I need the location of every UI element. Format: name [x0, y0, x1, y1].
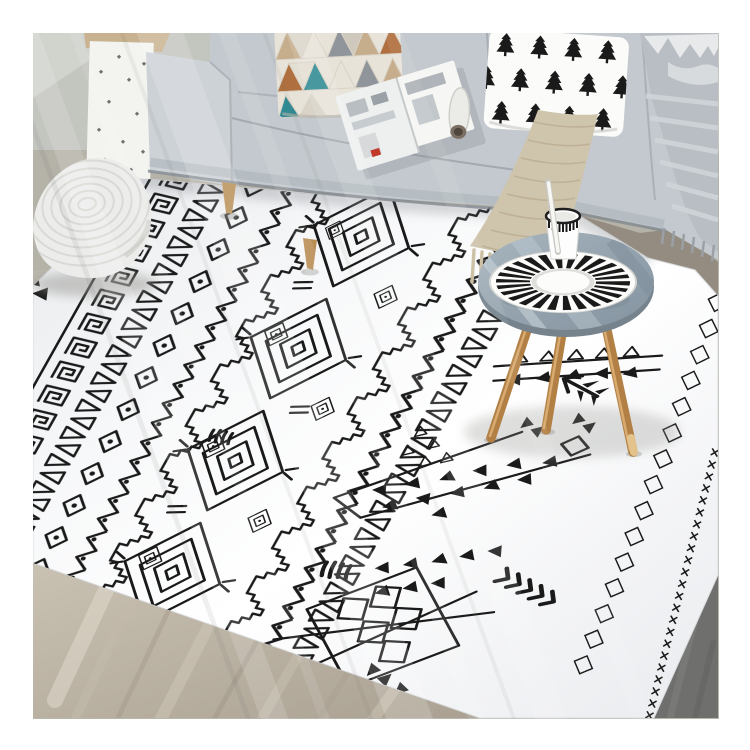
sunburst-saucer — [490, 251, 636, 312]
photo-canvas: ◇◇◇◇◇◇◇◇◇◇◇◇◇◇◇ ×××××××××××××××××××××××× — [0, 0, 750, 750]
living-room-rug-photo: ◇◇◇◇◇◇◇◇◇◇◇◇◇◇◇ ×××××××××××××××××××××××× — [0, 0, 750, 750]
photo-area: ◇◇◇◇◇◇◇◇◇◇◇◇◇◇◇ ×××××××××××××××××××××××× — [0, 0, 750, 750]
